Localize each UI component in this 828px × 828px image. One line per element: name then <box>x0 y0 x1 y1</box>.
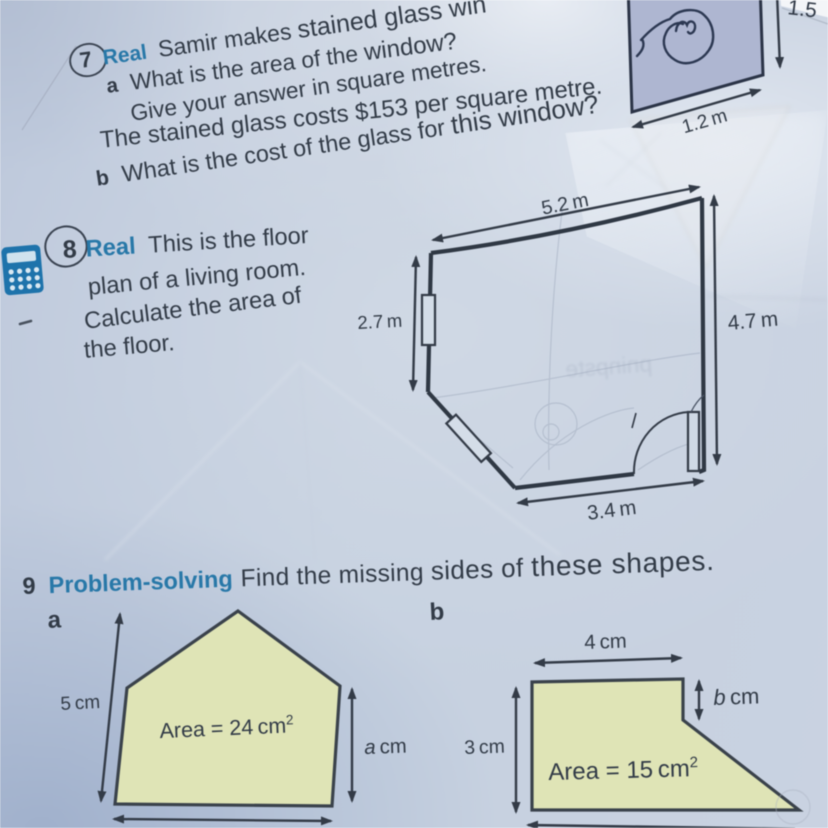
svg-text:pninpste: pninpste <box>564 350 653 382</box>
svg-text:1.5: 1.5 <box>786 0 818 23</box>
